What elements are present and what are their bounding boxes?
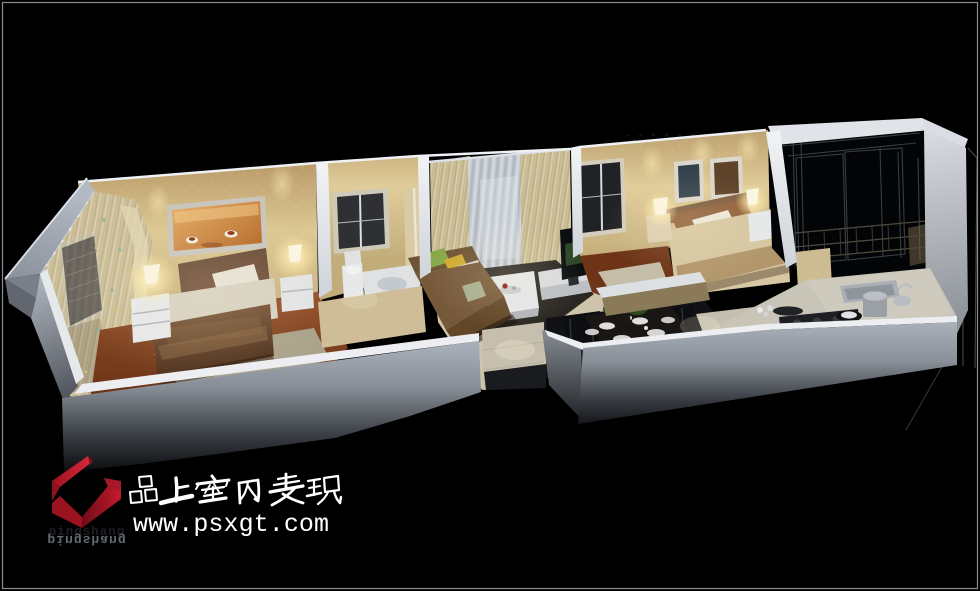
svg-text:www.psxgt.com: www.psxgt.com xyxy=(133,510,329,539)
svg-text:pingshang: pingshang xyxy=(47,532,126,547)
